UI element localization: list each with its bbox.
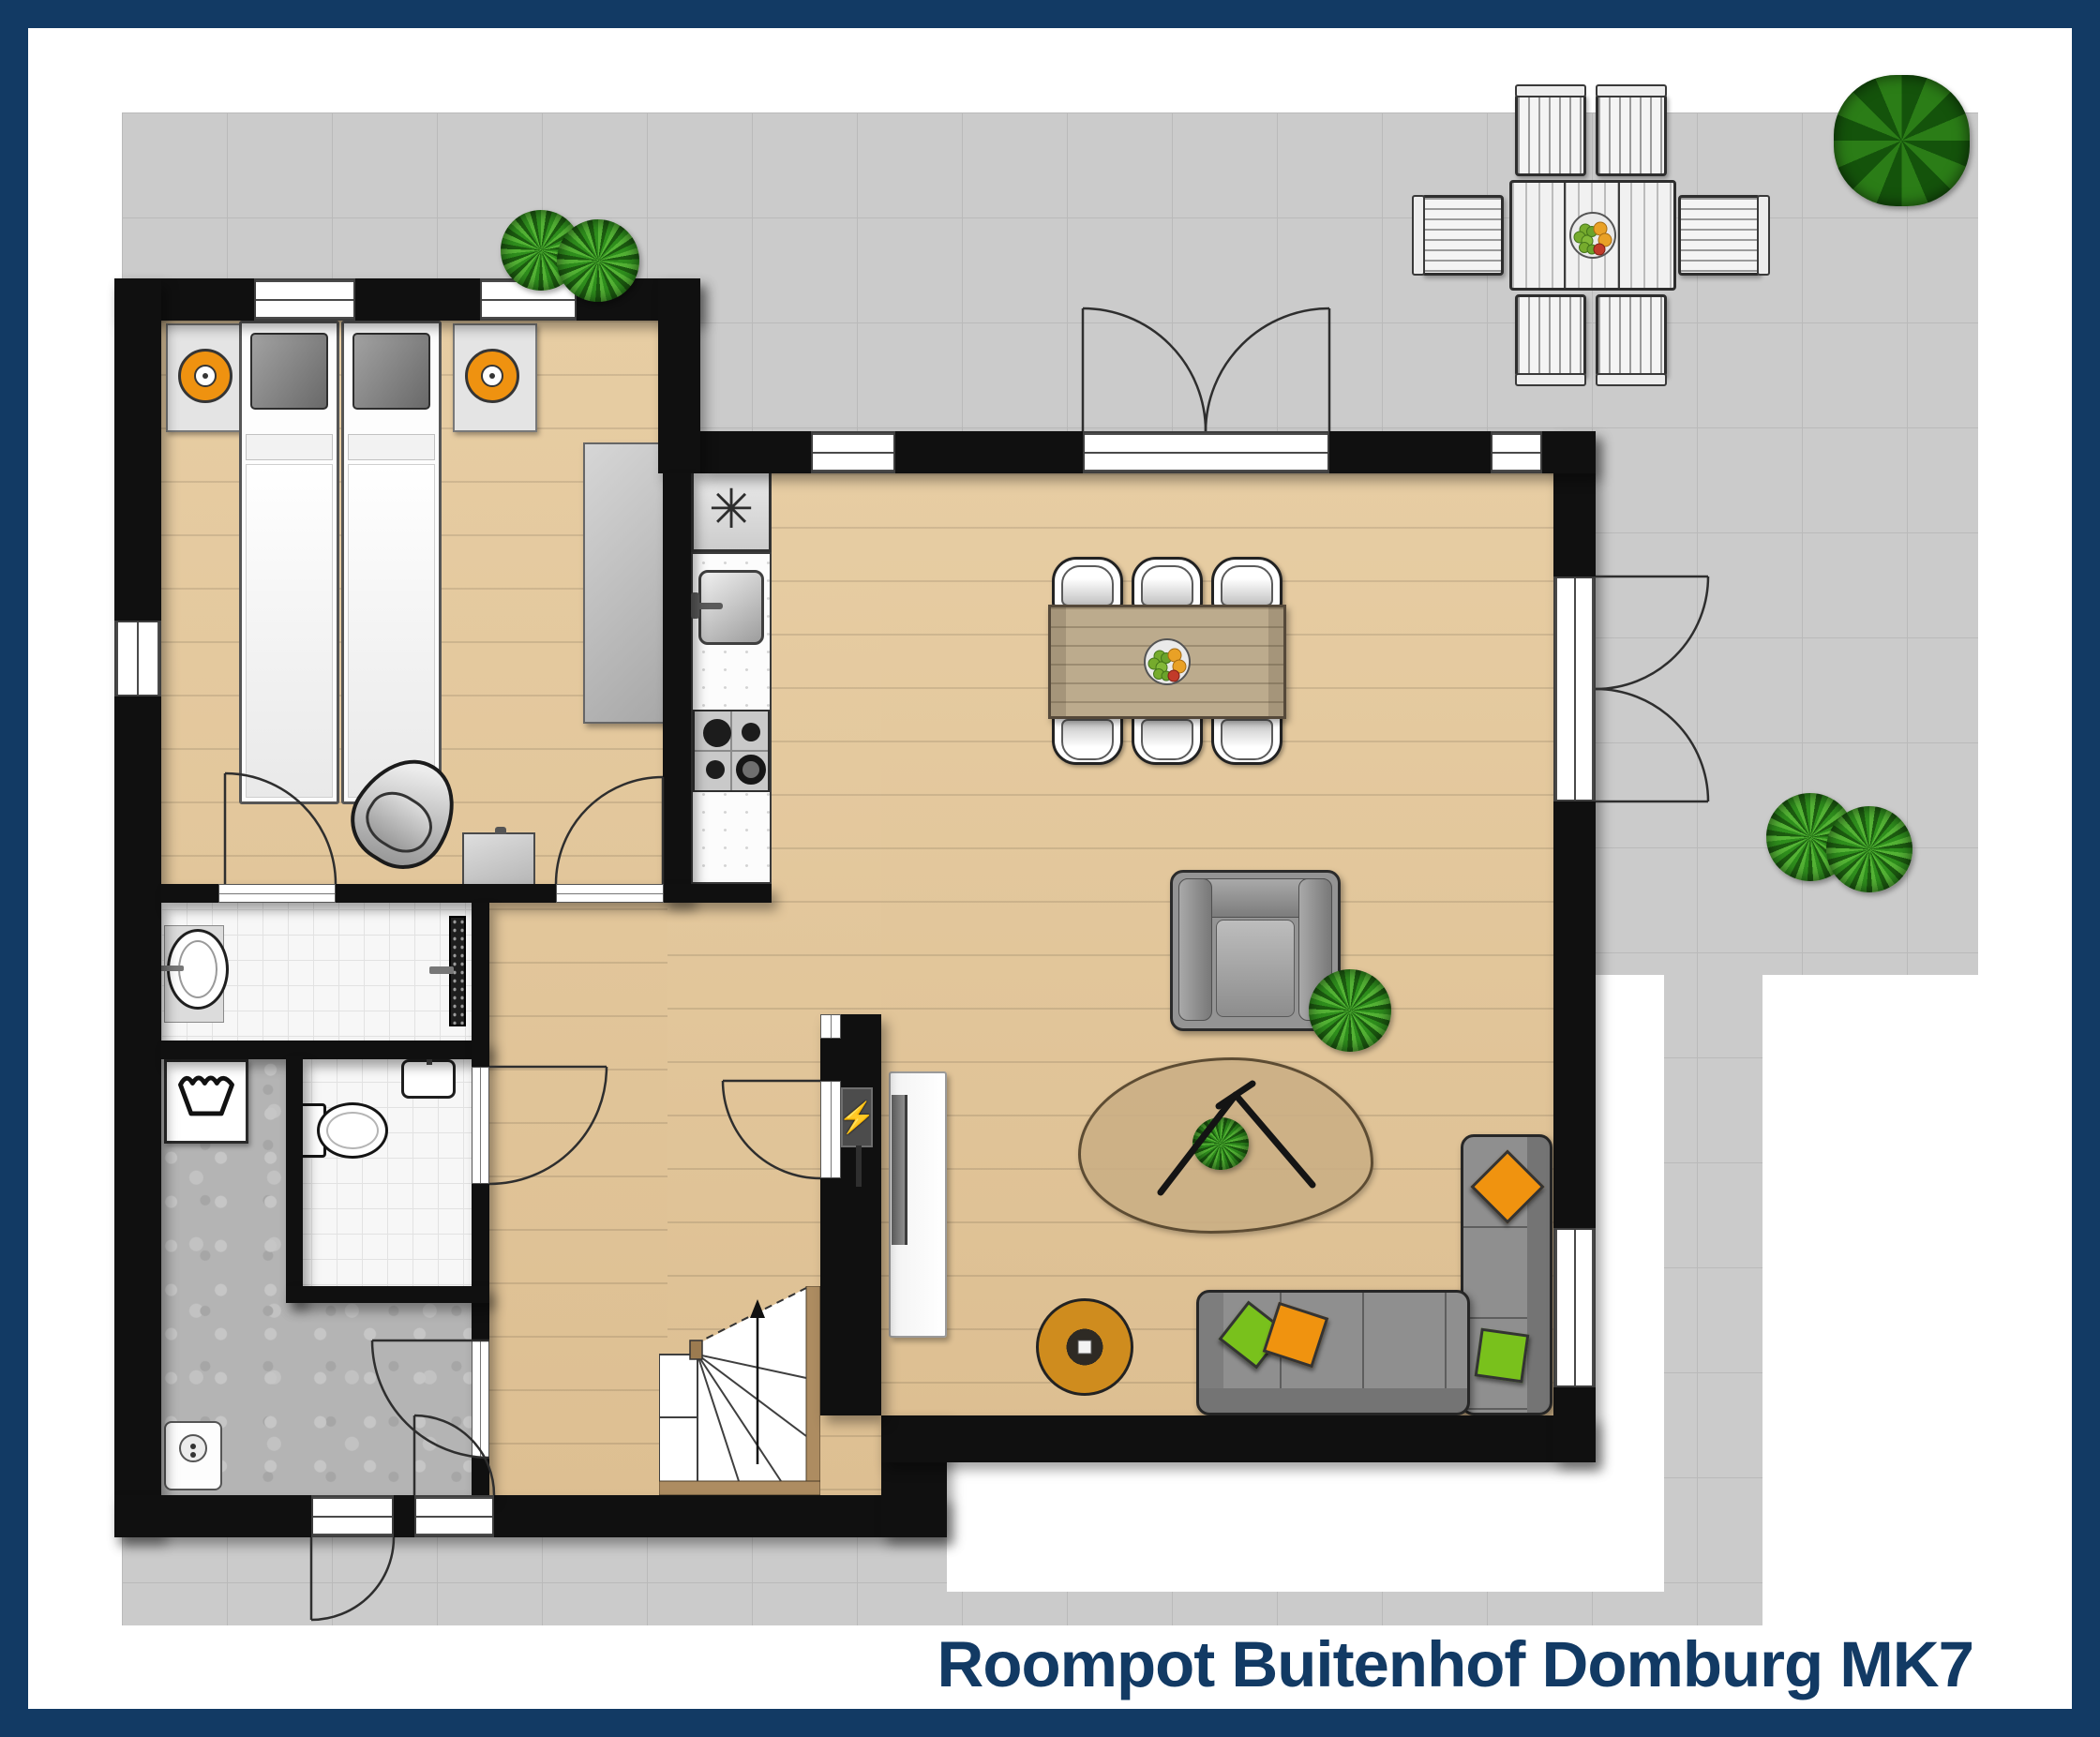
terrace-plant-large-icon	[1834, 75, 1970, 206]
outdoor-chair	[1596, 94, 1667, 176]
door-sill-utility-exterior	[311, 1495, 394, 1537]
armchair-armrest	[1178, 878, 1212, 1021]
outdoor-chair	[1678, 195, 1761, 276]
door-sill-bedroom-hall	[556, 884, 664, 903]
sheet-fold	[348, 434, 435, 460]
terrace-right	[1596, 433, 1978, 975]
fruit-bowl-dining	[1143, 637, 1192, 686]
duvet	[348, 464, 435, 798]
door-sill-utility	[472, 1340, 489, 1458]
wardrobe	[583, 442, 671, 724]
door-sill-front-door	[414, 1495, 494, 1537]
wall-bottom-left	[114, 1495, 947, 1537]
dining-chair	[1211, 557, 1282, 611]
bedside-lamp-right-icon	[465, 349, 519, 403]
burner-large	[703, 719, 731, 747]
plan-title: Roompot Buitenhof Domburg MK7	[937, 1627, 1974, 1701]
living-plant-icon	[1309, 969, 1391, 1052]
terrace-upper-right	[700, 279, 1978, 433]
bedside-lamp-left-icon	[178, 349, 232, 403]
door-sill-bedroom-bathroom	[218, 884, 336, 903]
washing-machine-icon	[174, 1070, 238, 1121]
window-bedroom-left	[114, 621, 161, 696]
wall-hall-living	[820, 1014, 881, 1415]
desk	[462, 832, 535, 889]
path-bottom-right	[947, 1592, 1762, 1625]
french-door-top-sill	[1083, 431, 1329, 473]
dining-chair	[1052, 557, 1123, 611]
path-vertical	[1664, 975, 1762, 1625]
outdoor-chair	[1596, 294, 1667, 377]
freezer-icon: ✳	[709, 477, 755, 541]
washing-machine	[164, 1059, 248, 1144]
duvet	[246, 464, 333, 798]
pillow-icon	[352, 333, 430, 410]
floor-toilet	[286, 1056, 489, 1303]
terrace-plant-icon	[1826, 806, 1912, 892]
rug-plant-icon	[1192, 1117, 1249, 1170]
burner-small	[706, 760, 725, 779]
floor-plan-canvas: ✳	[0, 0, 2100, 1737]
window-living-right	[1553, 1228, 1596, 1387]
wall-kitchen-back	[663, 473, 691, 903]
window-living-top-1	[811, 431, 895, 473]
window-bedroom-1	[254, 278, 355, 321]
wall-left	[114, 278, 161, 1537]
freezer: ✳	[691, 466, 772, 552]
boiler	[164, 1421, 222, 1490]
wall-bedroom-right	[658, 278, 700, 473]
shower-mixer-icon	[429, 966, 454, 974]
outdoor-chair	[1515, 94, 1586, 176]
wall-living-bottom	[881, 1415, 1596, 1462]
outdoor-chair	[1515, 294, 1586, 377]
window-living-top-2	[1491, 431, 1542, 473]
cushion-green	[1475, 1328, 1530, 1384]
kitchen-faucet-handle	[691, 592, 699, 619]
burner-large-ring	[736, 755, 766, 785]
round-side-table	[1036, 1298, 1133, 1396]
bed-left	[239, 321, 339, 804]
door-sill-toilet	[472, 1067, 489, 1184]
fruit-bowl-outdoor	[1568, 211, 1617, 260]
wall-toilet-left	[286, 1056, 303, 1303]
tv-screen	[892, 1095, 907, 1245]
gas-hob	[693, 710, 770, 792]
wall-bathroom-bottom	[161, 1041, 489, 1059]
path-bottom-left	[122, 1537, 947, 1625]
hand-basin	[401, 1059, 456, 1099]
armchair-seat	[1216, 920, 1295, 1017]
meter-cupboard-panel: ⚡	[841, 1087, 873, 1147]
bed-right	[341, 321, 442, 804]
outdoor-chair	[1421, 195, 1504, 276]
power-icon: ⚡	[838, 1100, 876, 1135]
pillow-icon	[250, 333, 328, 410]
terrace-plant-icon	[557, 219, 639, 302]
wall-toilet-bottom	[286, 1286, 489, 1303]
dining-chair	[1132, 557, 1203, 611]
staircase	[659, 1286, 820, 1495]
burner-small	[742, 723, 760, 741]
french-door-right-sill	[1553, 577, 1596, 801]
wall-opening-cap	[820, 1014, 841, 1039]
sheet-fold	[246, 434, 333, 460]
toilet-bowl	[317, 1102, 388, 1159]
